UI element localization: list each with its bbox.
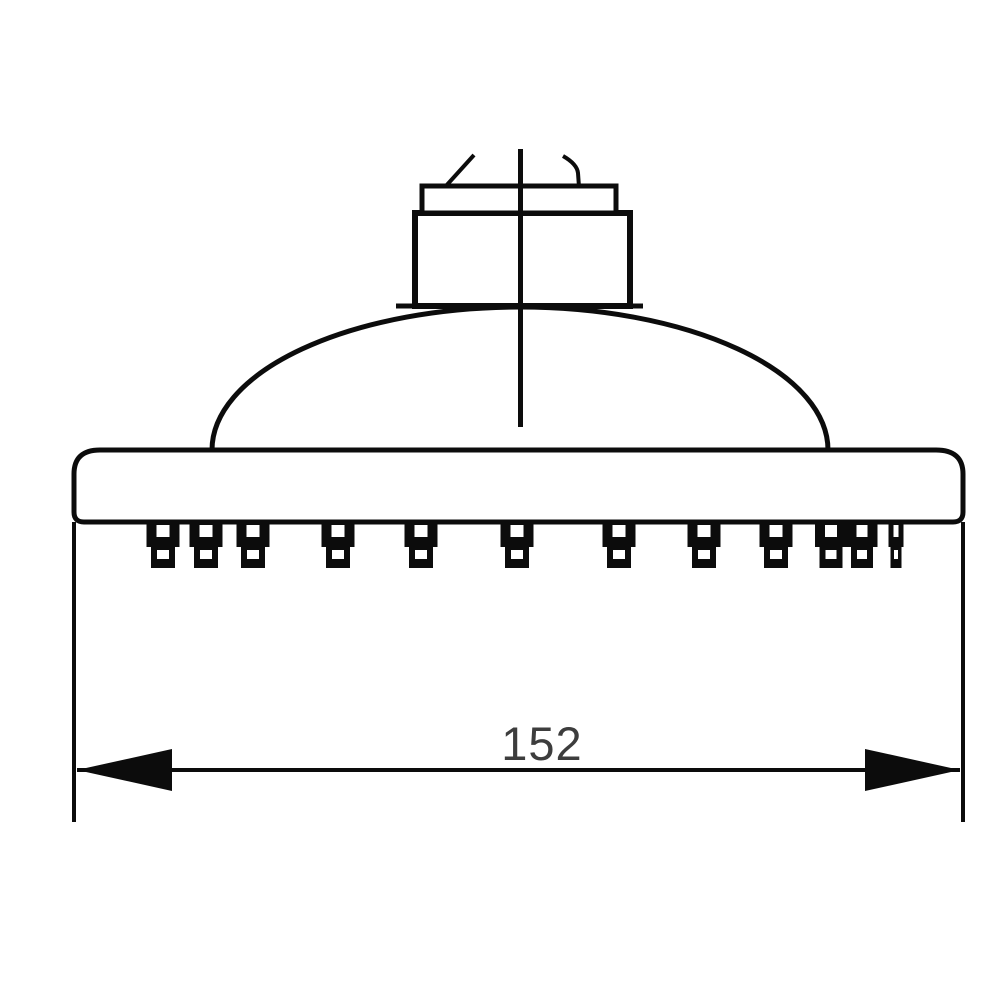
nozzle — [237, 521, 270, 568]
nozzle — [322, 521, 355, 568]
nozzle — [889, 521, 904, 568]
nozzle — [688, 521, 721, 568]
dimension-arrow-left — [77, 749, 172, 791]
dimension-arrow-right — [865, 749, 960, 791]
nozzle — [603, 521, 636, 568]
nozzle — [847, 521, 878, 568]
nozzle — [501, 521, 534, 568]
drawing-canvas: 152 — [0, 0, 1000, 1000]
nozzle — [147, 521, 180, 568]
nozzle-row — [147, 521, 904, 568]
shower-head-technical-drawing: 152 — [0, 0, 1000, 1000]
head-plate — [74, 450, 963, 522]
nozzle — [815, 521, 847, 568]
pipe-break-line-right — [563, 156, 579, 187]
nozzle — [405, 521, 438, 568]
pipe-break-line-left — [445, 155, 474, 187]
dimension-value-label: 152 — [501, 717, 582, 770]
nozzle — [760, 521, 793, 568]
nozzle — [190, 521, 223, 568]
